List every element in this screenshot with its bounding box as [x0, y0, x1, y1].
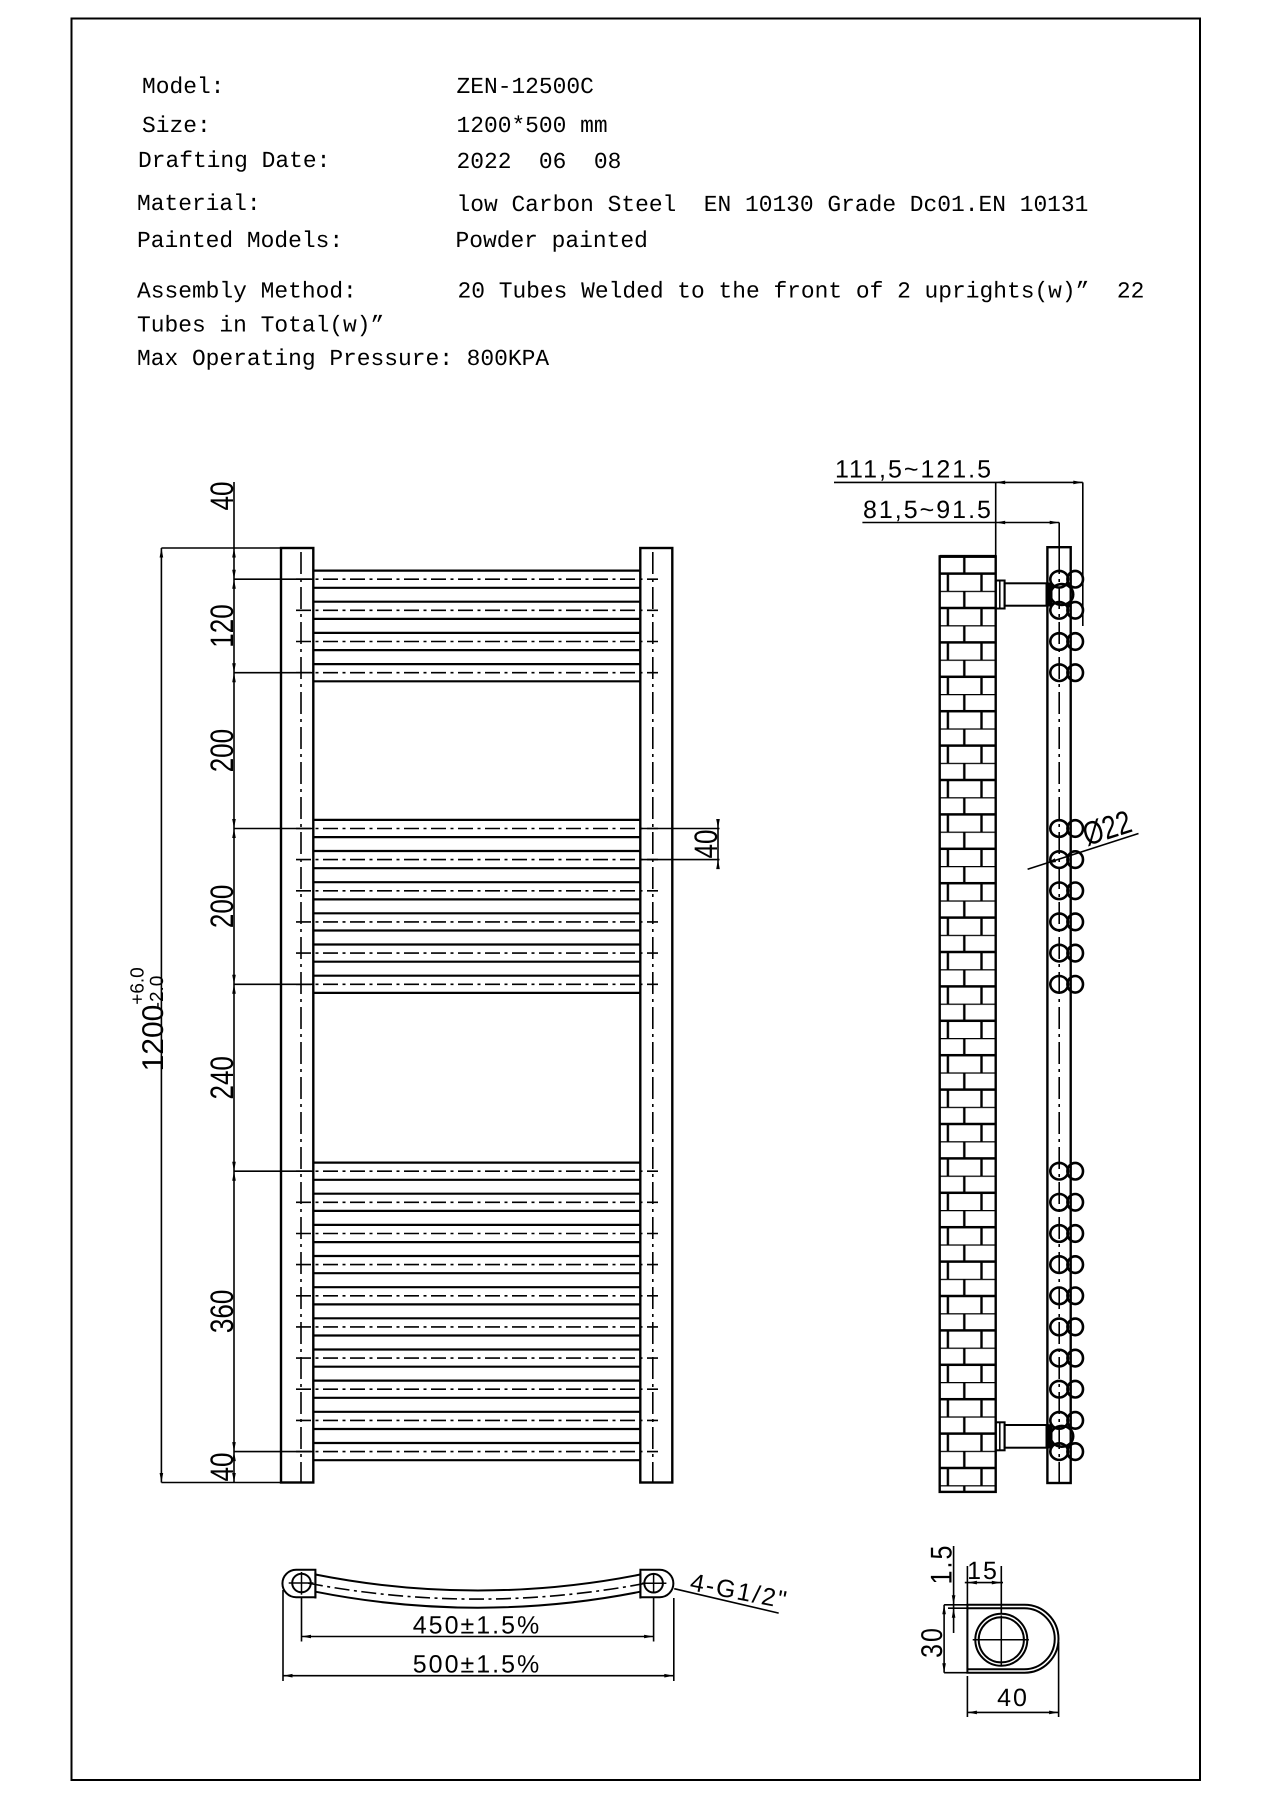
svg-text:200: 200 — [203, 885, 241, 928]
svg-text:1200*500 mm: 1200*500 mm — [457, 113, 608, 139]
svg-text:Tubes in Total(w)”: Tubes in Total(w)” — [137, 313, 384, 339]
svg-text:-2.0: -2.0 — [147, 976, 168, 1009]
svg-text:2022 06 08: 2022 06 08 — [457, 149, 622, 175]
svg-text:Size:: Size: — [142, 113, 211, 139]
svg-text:Assembly Method:: Assembly Method: — [137, 279, 357, 305]
svg-text:120: 120 — [203, 604, 241, 647]
svg-text:81,5~91.5: 81,5~91.5 — [863, 496, 993, 524]
svg-text:450±1.5%: 450±1.5% — [413, 1612, 541, 1640]
svg-text:360: 360 — [203, 1290, 241, 1333]
svg-text:20 Tubes Welded to the front o: 20 Tubes Welded to the front of 2 uprigh… — [458, 279, 1145, 305]
svg-text:15: 15 — [967, 1557, 999, 1585]
svg-text:200: 200 — [203, 729, 241, 772]
svg-text:500±1.5%: 500±1.5% — [413, 1651, 541, 1679]
svg-text:40: 40 — [997, 1684, 1029, 1712]
svg-text:ZEN-12500C: ZEN-12500C — [457, 74, 594, 100]
svg-text:Max Operating Pressure: 800KPA: Max Operating Pressure: 800KPA — [137, 346, 549, 372]
svg-text:40: 40 — [203, 1453, 241, 1482]
svg-text:30: 30 — [916, 1626, 950, 1658]
svg-text:40: 40 — [203, 482, 241, 511]
svg-text:1200: 1200 — [137, 1005, 170, 1072]
svg-text:40: 40 — [687, 830, 725, 859]
svg-text:Model:: Model: — [142, 74, 224, 100]
svg-text:1.5: 1.5 — [925, 1544, 959, 1585]
svg-text:+6.0: +6.0 — [127, 967, 148, 1005]
svg-text:low Carbon Steel EN 10130 Gra: low Carbon Steel EN 10130 Grade Dc01.EN … — [457, 192, 1089, 218]
svg-text:Drafting Date:: Drafting Date: — [138, 148, 330, 174]
svg-text:Powder painted: Powder painted — [456, 228, 648, 254]
svg-text:Painted Models:: Painted Models: — [137, 228, 343, 254]
svg-text:111,5~121.5: 111,5~121.5 — [835, 456, 993, 484]
svg-text:Material:: Material: — [137, 191, 261, 217]
svg-text:240: 240 — [203, 1056, 241, 1099]
